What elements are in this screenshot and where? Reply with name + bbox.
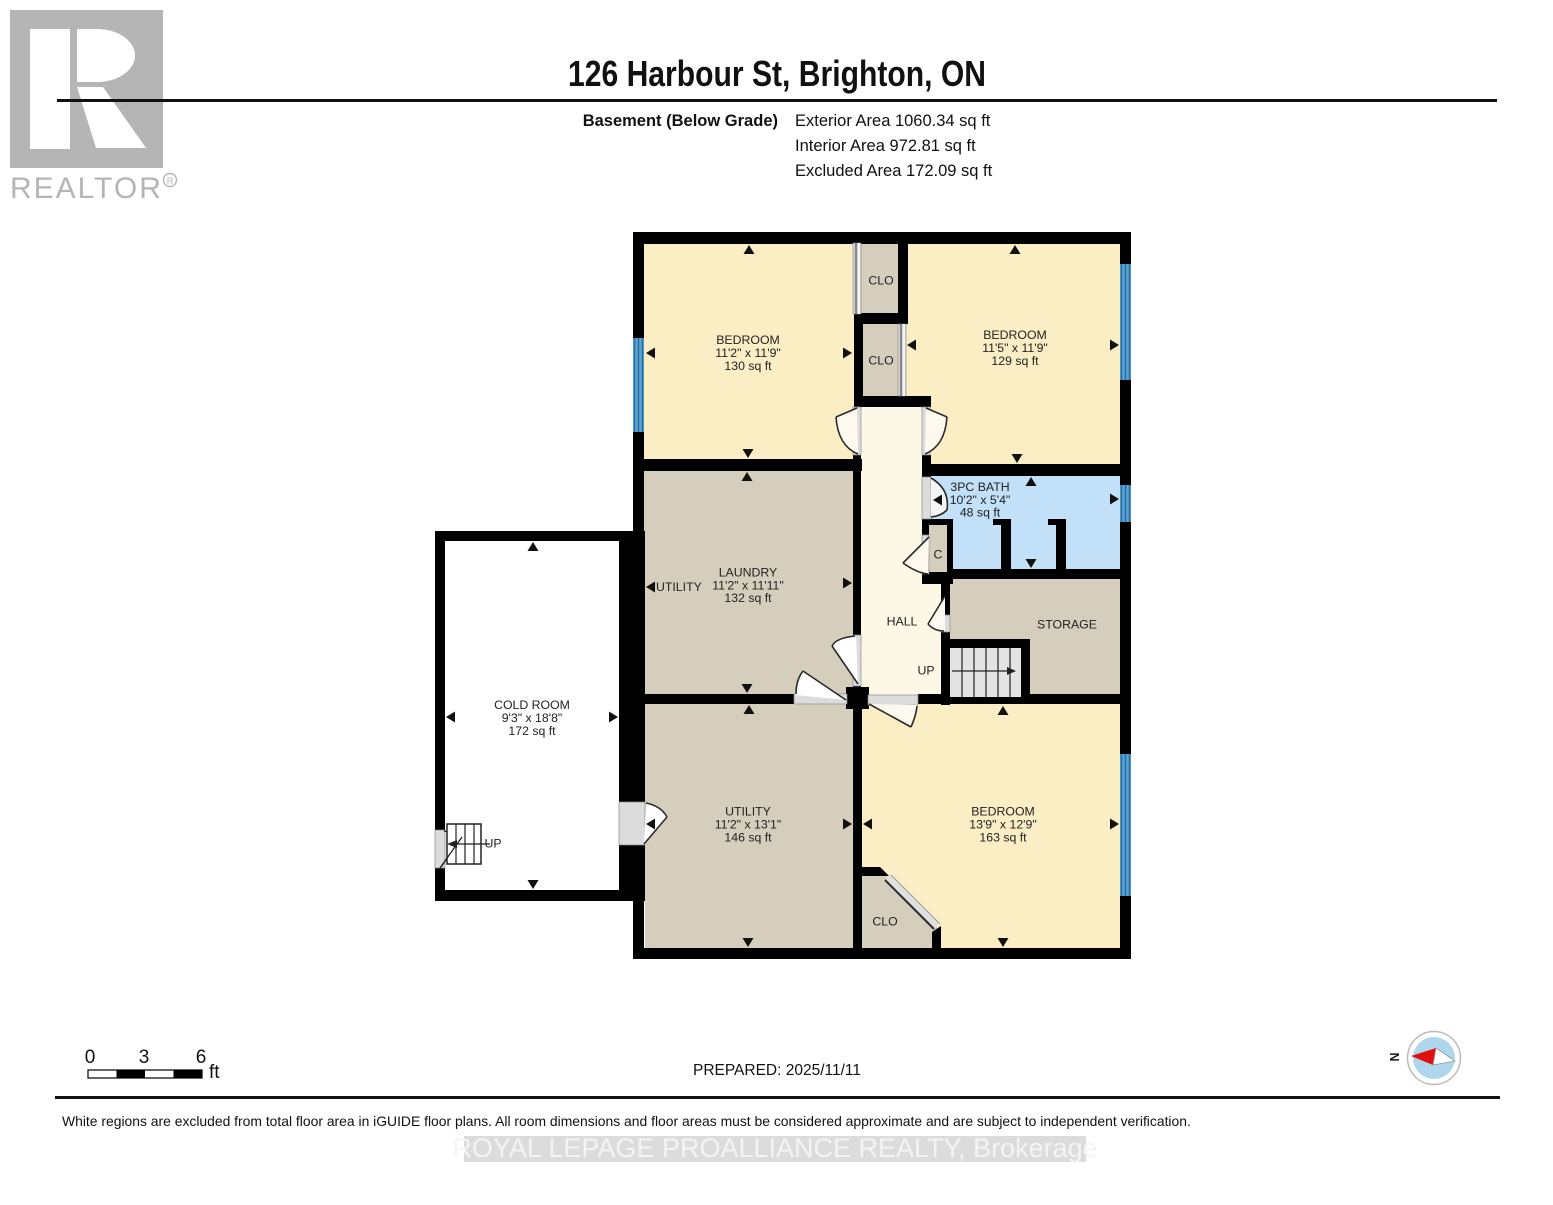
- svg-text:UTILITY: UTILITY: [725, 805, 771, 819]
- svg-text:13'9" x 12'9": 13'9" x 12'9": [969, 818, 1036, 832]
- svg-text:REALTOR: REALTOR: [10, 172, 163, 205]
- svg-text:11'5" x 11'9": 11'5" x 11'9": [982, 341, 1048, 355]
- svg-text:LAUNDRY: LAUNDRY: [719, 566, 778, 580]
- svg-text:9'3" x 18'8": 9'3" x 18'8": [502, 711, 563, 725]
- svg-text:ROYAL LEPAGE PROALLIANCE REALT: ROYAL LEPAGE PROALLIANCE REALTY, Brokera…: [452, 1133, 1097, 1163]
- svg-text:COLD ROOM: COLD ROOM: [494, 698, 570, 712]
- svg-text:Exterior Area 1060.34 sq ft: Exterior Area 1060.34 sq ft: [795, 112, 991, 130]
- svg-text:HALL: HALL: [887, 615, 918, 629]
- svg-text:CLO: CLO: [872, 915, 897, 929]
- svg-text:6: 6: [196, 1047, 207, 1068]
- svg-text:163 sq ft: 163 sq ft: [979, 831, 1027, 845]
- svg-text:UP: UP: [484, 837, 501, 851]
- svg-text:11'2" x 13'1": 11'2" x 13'1": [715, 818, 782, 832]
- svg-text:C: C: [934, 548, 943, 562]
- svg-text:UP: UP: [917, 664, 934, 678]
- svg-text:Interior Area 972.81 sq ft: Interior Area 972.81 sq ft: [795, 137, 976, 155]
- svg-text:CLO: CLO: [868, 354, 893, 368]
- svg-text:132 sq ft: 132 sq ft: [724, 591, 772, 605]
- svg-text:R: R: [167, 176, 174, 186]
- svg-text:130 sq ft: 130 sq ft: [724, 359, 772, 373]
- svg-text:BEDROOM: BEDROOM: [971, 805, 1035, 819]
- svg-text:Excluded Area 172.09 sq ft: Excluded Area 172.09 sq ft: [795, 162, 993, 180]
- svg-text:PREPARED: 2025/11/11: PREPARED: 2025/11/11: [693, 1062, 861, 1079]
- svg-text:11'2" x 11'9": 11'2" x 11'9": [715, 346, 781, 360]
- svg-text:BEDROOM: BEDROOM: [983, 328, 1047, 342]
- svg-text:N: N: [1388, 1052, 1402, 1061]
- svg-text:White regions are excluded fro: White regions are excluded from total fl…: [62, 1113, 1191, 1129]
- svg-text:129 sq ft: 129 sq ft: [991, 354, 1039, 368]
- svg-text:126 Harbour St, Brighton, ON: 126 Harbour St, Brighton, ON: [568, 53, 986, 94]
- svg-text:STORAGE: STORAGE: [1037, 618, 1097, 632]
- svg-text:ft: ft: [209, 1062, 220, 1083]
- svg-text:3: 3: [139, 1047, 150, 1068]
- svg-text:172 sq ft: 172 sq ft: [508, 724, 556, 738]
- svg-text:3PC BATH: 3PC BATH: [950, 480, 1009, 494]
- svg-text:0: 0: [85, 1047, 96, 1068]
- svg-text:146 sq ft: 146 sq ft: [724, 831, 772, 845]
- svg-text:48 sq ft: 48 sq ft: [960, 506, 1001, 520]
- svg-text:BEDROOM: BEDROOM: [716, 333, 780, 347]
- svg-text:UTILITY: UTILITY: [656, 580, 702, 594]
- svg-text:CLO: CLO: [868, 274, 893, 288]
- svg-text:Basement (Below Grade): Basement (Below Grade): [583, 112, 778, 130]
